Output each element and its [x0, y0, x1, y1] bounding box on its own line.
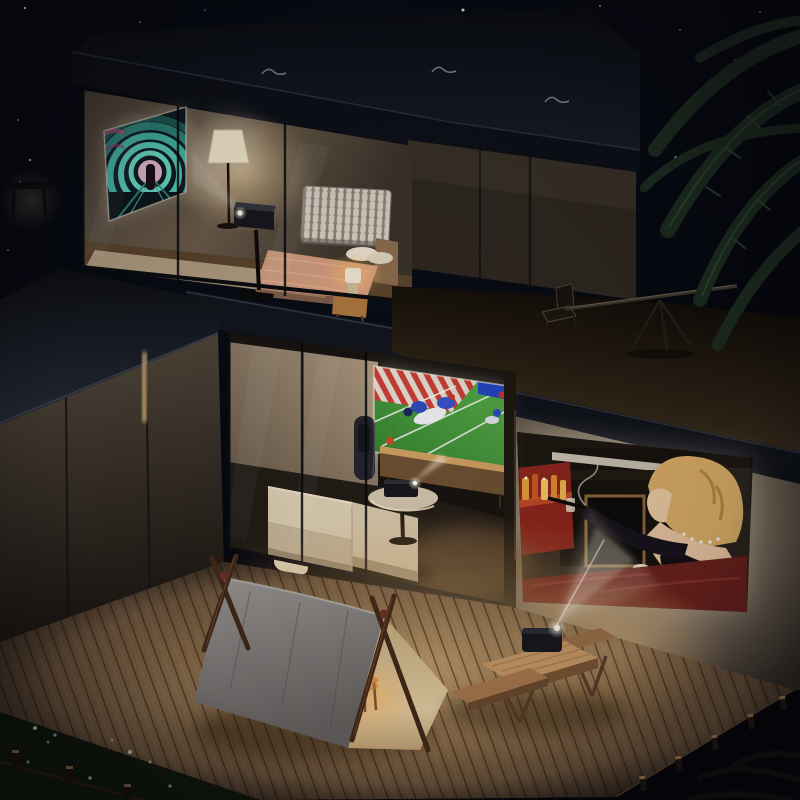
- global-vignette: [0, 0, 800, 800]
- scene-canvas: [0, 0, 800, 800]
- scene-night-smart-home: [0, 0, 800, 800]
